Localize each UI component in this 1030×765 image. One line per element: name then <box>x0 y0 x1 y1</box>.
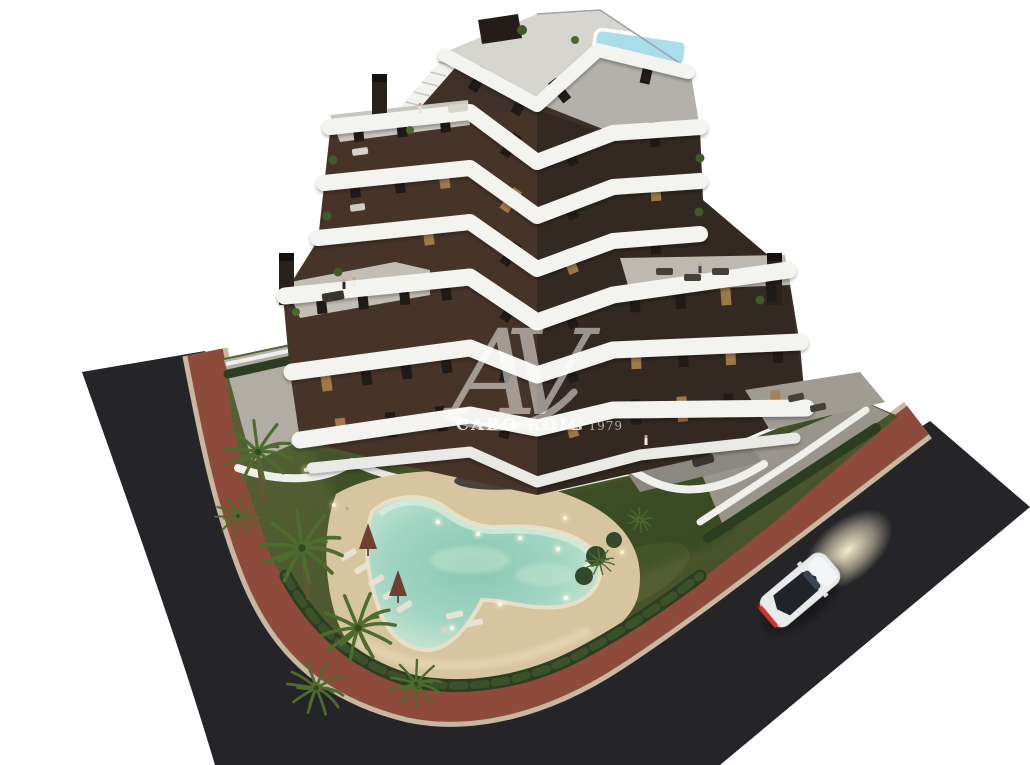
watermark-tagline: Desde 1979 <box>541 419 623 433</box>
pool-light-streak <box>430 546 510 574</box>
side-table <box>441 627 448 634</box>
person <box>698 263 701 273</box>
apartment-building <box>279 10 885 517</box>
pool-light-streak <box>515 564 575 586</box>
roof-plant <box>517 25 527 35</box>
roof-plant <box>571 36 579 44</box>
person <box>644 435 647 445</box>
person <box>418 103 421 113</box>
person <box>345 507 348 517</box>
person <box>342 279 345 289</box>
person <box>352 277 355 287</box>
architectural-render: AV CABO ROIG Desde 1979 <box>0 0 1030 765</box>
